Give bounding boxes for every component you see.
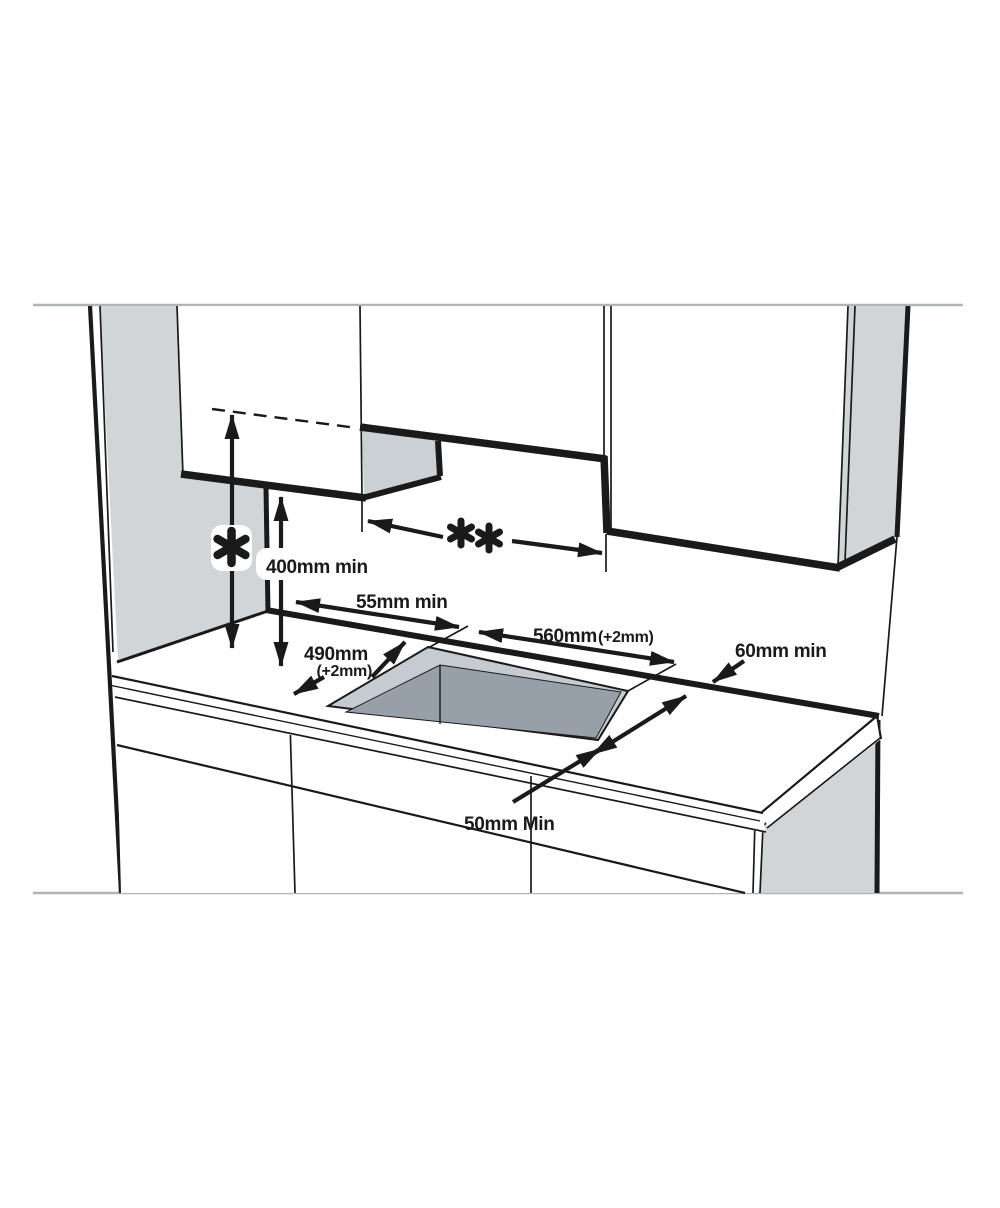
front-clearance-label: 50mm Min [464,814,555,835]
upper-left-cabinet-front [177,306,362,498]
recess-width-arrow-right [512,541,602,553]
cutout-width-label: 560mm [533,626,597,647]
cutout-depth-label: 490mm [304,644,368,665]
upper-right-cabinet-front [611,306,848,566]
installation-diagram: * ** 400mm min 55mm min 560mm (+2mm) 490… [0,0,1000,1208]
cutout-depth-tolerance-label: (+2mm) [316,663,372,680]
recess-width-arrow-left [368,521,443,537]
cabinet-clearance-label: 400mm min [266,557,368,578]
double-asterisk-icon: ** [451,521,500,550]
side-clearance-arrow [713,661,744,682]
base-cabinet-right-back-edge [877,720,878,893]
rear-wall-right-edge [882,537,897,716]
rear-clearance-label: 55mm min [356,592,448,613]
cutout-width-tolerance-label: (+2mm) [598,629,654,646]
recess-panel-right-edge [438,441,440,476]
diagram-canvas: * ** 400mm min 55mm min 560mm (+2mm) 490… [0,0,1000,1208]
side-clearance-label: 60mm min [735,641,827,662]
recess-right-corner-edge [604,456,607,533]
